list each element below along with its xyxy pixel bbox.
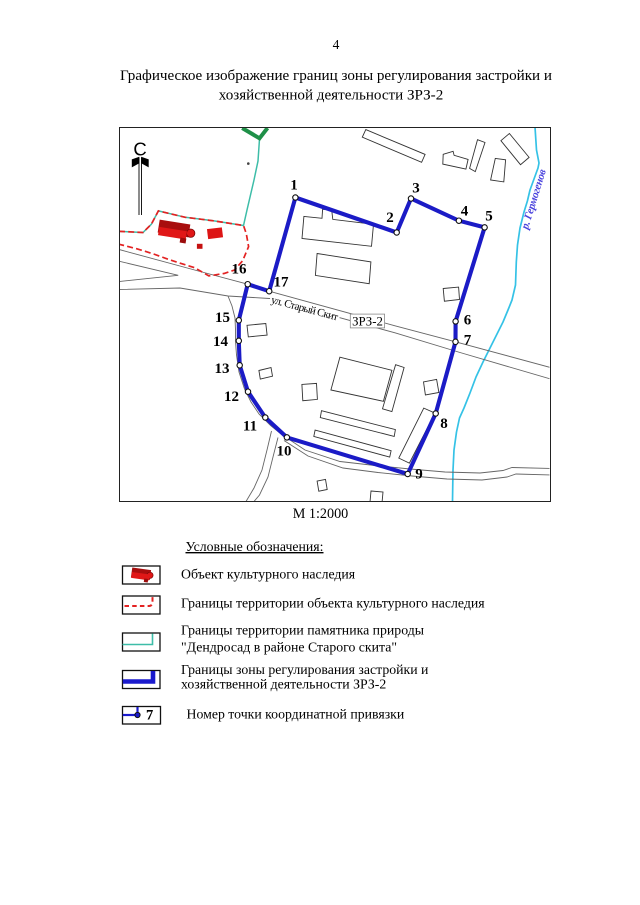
svg-text:Границы зоны регулирования зас: Границы зоны регулирования застройки и bbox=[181, 662, 429, 677]
svg-text:14: 14 bbox=[213, 334, 229, 350]
svg-text:ЗРЗ-2: ЗРЗ-2 bbox=[352, 314, 383, 328]
svg-text:М 1:2000: М 1:2000 bbox=[293, 506, 349, 522]
svg-text:Границы территории объекта кул: Границы территории объекта культурного н… bbox=[181, 596, 485, 611]
svg-text:4: 4 bbox=[461, 204, 469, 220]
svg-text:2: 2 bbox=[386, 210, 394, 226]
svg-text:5: 5 bbox=[485, 209, 493, 225]
svg-text:хозяйственной деятельности ЗРЗ: хозяйственной деятельности ЗРЗ-2 bbox=[181, 676, 386, 691]
svg-text:9: 9 bbox=[415, 467, 423, 483]
svg-text:1: 1 bbox=[290, 178, 298, 194]
svg-text:17: 17 bbox=[274, 275, 290, 291]
svg-text:16: 16 bbox=[232, 262, 248, 278]
svg-text:"Дендросад в районе Старого ск: "Дендросад в районе Старого скита" bbox=[181, 639, 397, 654]
svg-text:12: 12 bbox=[224, 389, 239, 405]
svg-text:Границы территории памятника п: Границы территории памятника природы bbox=[181, 623, 424, 638]
svg-text:3: 3 bbox=[412, 181, 420, 197]
svg-text:8: 8 bbox=[440, 416, 448, 432]
svg-text:10: 10 bbox=[277, 444, 292, 460]
svg-text:Номер точки координатной привя: Номер точки координатной привязки bbox=[187, 707, 405, 722]
svg-text:7: 7 bbox=[464, 333, 472, 349]
svg-text:7: 7 bbox=[146, 708, 153, 724]
svg-text:Графическое изображение границ: Графическое изображение границ зоны регу… bbox=[120, 68, 552, 84]
svg-text:11: 11 bbox=[243, 419, 257, 435]
svg-text:хозяйственной деятельности ЗРЗ: хозяйственной деятельности ЗРЗ-2 bbox=[219, 88, 444, 104]
svg-text:4: 4 bbox=[333, 37, 340, 52]
svg-text:13: 13 bbox=[215, 361, 230, 377]
svg-text:6: 6 bbox=[464, 313, 472, 329]
svg-text:С: С bbox=[133, 139, 146, 160]
svg-text:Объект культурного наследия: Объект культурного наследия bbox=[181, 567, 356, 582]
svg-text:Условные обозначения:: Условные обозначения: bbox=[186, 539, 324, 554]
svg-text:15: 15 bbox=[215, 310, 230, 326]
